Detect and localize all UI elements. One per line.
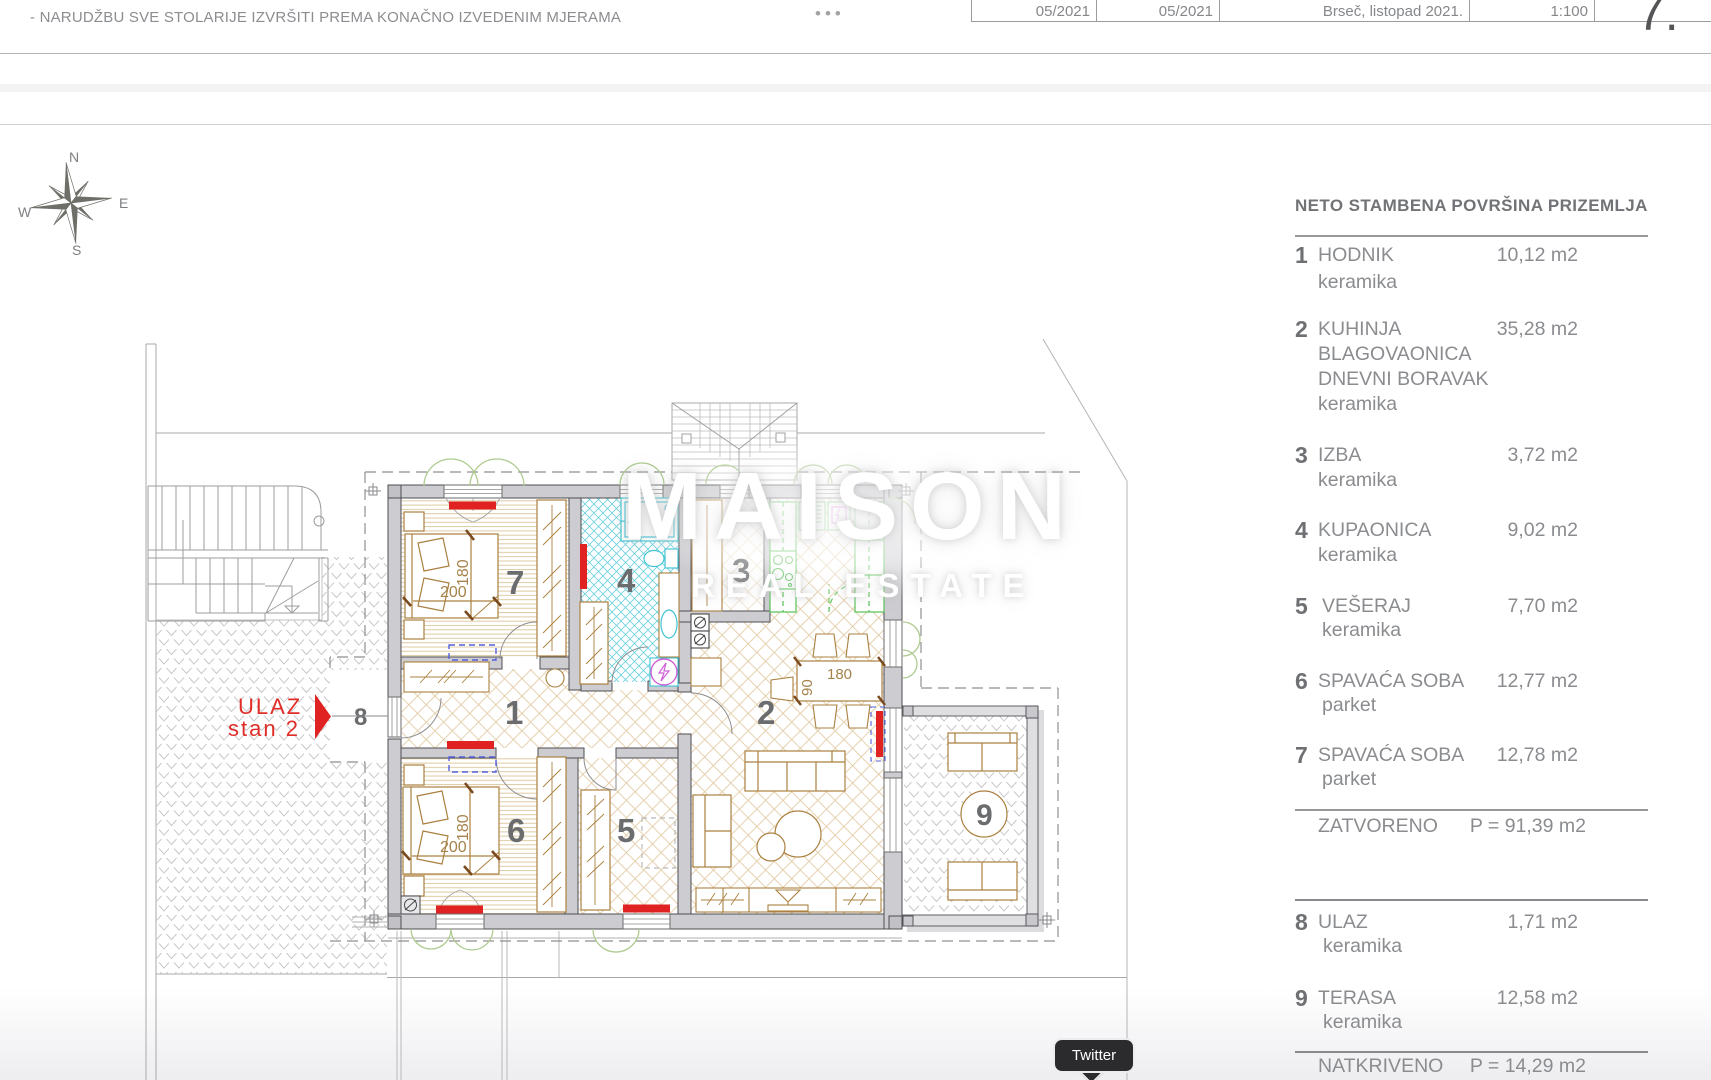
svg-text:9: 9 bbox=[976, 799, 993, 832]
svg-text:E: E bbox=[119, 195, 128, 211]
svg-text:2: 2 bbox=[757, 694, 775, 731]
svg-text:180: 180 bbox=[455, 814, 472, 841]
svg-text:stan 2: stan 2 bbox=[228, 716, 300, 741]
svg-text:180: 180 bbox=[827, 666, 852, 683]
svg-text:6: 6 bbox=[507, 812, 525, 849]
svg-text:1: 1 bbox=[505, 694, 523, 731]
svg-text:90: 90 bbox=[799, 679, 816, 696]
svg-text:N: N bbox=[69, 149, 79, 165]
svg-text:180: 180 bbox=[455, 559, 472, 586]
svg-text:8: 8 bbox=[354, 704, 367, 731]
svg-text:W: W bbox=[18, 204, 32, 220]
svg-text:5: 5 bbox=[617, 812, 635, 849]
svg-text:S: S bbox=[72, 242, 81, 258]
svg-text:7: 7 bbox=[506, 564, 524, 601]
